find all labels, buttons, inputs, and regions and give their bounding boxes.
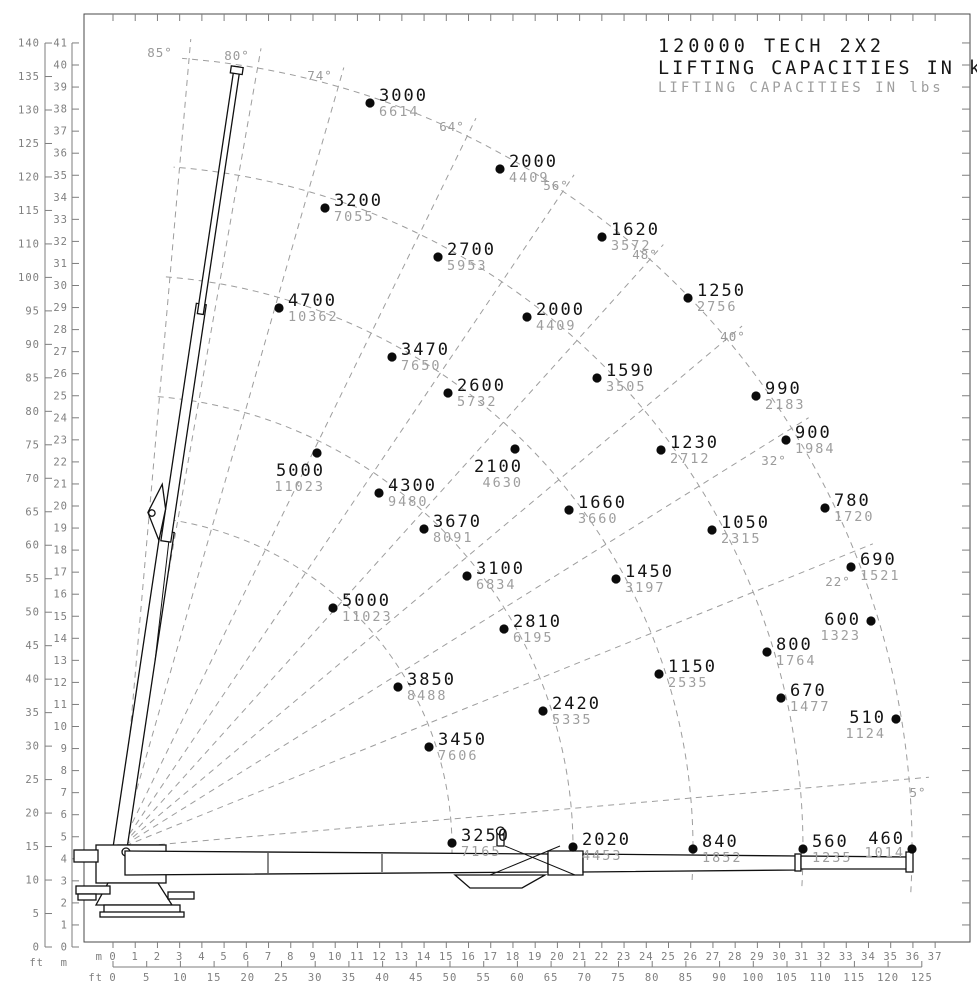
- svg-text:36: 36: [906, 951, 921, 963]
- angle-label: 80°: [224, 48, 250, 63]
- svg-text:1660: 1660: [578, 493, 627, 513]
- svg-text:6: 6: [243, 951, 250, 963]
- svg-text:7055: 7055: [334, 209, 375, 225]
- svg-text:22: 22: [595, 951, 610, 963]
- svg-text:85: 85: [25, 372, 40, 384]
- svg-text:85: 85: [679, 972, 694, 984]
- svg-text:3450: 3450: [438, 730, 487, 750]
- capacity-point: 9902183: [751, 379, 805, 413]
- angle-label: 22°: [825, 574, 851, 589]
- capacity-point: 7801720: [820, 491, 874, 525]
- capacity-point: 31006834: [462, 559, 525, 593]
- svg-text:16: 16: [461, 951, 476, 963]
- svg-text:14: 14: [417, 951, 432, 963]
- svg-text:990: 990: [765, 379, 802, 399]
- svg-text:24: 24: [639, 951, 654, 963]
- svg-text:20: 20: [240, 972, 255, 984]
- svg-text:ft: ft: [88, 972, 103, 984]
- capacity-point: 500011023: [274, 448, 325, 495]
- svg-text:2600: 2600: [457, 376, 506, 396]
- svg-text:16: 16: [53, 589, 68, 601]
- svg-text:130: 130: [18, 105, 40, 117]
- svg-text:1014: 1014: [864, 845, 905, 861]
- svg-text:1250: 1250: [697, 281, 746, 301]
- svg-text:13: 13: [395, 951, 410, 963]
- svg-text:4409: 4409: [509, 170, 550, 186]
- svg-text:17: 17: [483, 951, 498, 963]
- svg-text:1: 1: [61, 919, 68, 931]
- svg-text:0: 0: [109, 972, 116, 984]
- capacity-point: 8001764: [762, 635, 816, 669]
- svg-text:27: 27: [53, 346, 68, 358]
- svg-text:6195: 6195: [513, 630, 554, 646]
- svg-text:33: 33: [53, 214, 68, 226]
- svg-text:12: 12: [53, 677, 68, 689]
- svg-text:7: 7: [61, 787, 68, 799]
- svg-text:15: 15: [207, 972, 222, 984]
- svg-text:15: 15: [439, 951, 454, 963]
- svg-text:37: 37: [928, 951, 943, 963]
- svg-text:5: 5: [220, 951, 227, 963]
- angle-label: 32°: [761, 453, 787, 468]
- svg-text:25: 25: [274, 972, 289, 984]
- svg-text:35: 35: [53, 170, 68, 182]
- svg-text:7606: 7606: [438, 748, 479, 764]
- svg-text:45: 45: [409, 972, 424, 984]
- chart-title-block: 120000 TECH 2X2 LIFTING CAPACITIES IN kg…: [658, 36, 977, 96]
- svg-text:5000: 5000: [276, 461, 325, 481]
- svg-text:m: m: [61, 957, 68, 969]
- svg-text:50: 50: [443, 972, 458, 984]
- svg-text:2712: 2712: [670, 451, 711, 467]
- svg-text:10: 10: [173, 972, 188, 984]
- svg-text:3: 3: [176, 951, 183, 963]
- svg-text:18: 18: [53, 545, 68, 557]
- svg-text:1150: 1150: [668, 657, 717, 677]
- svg-text:2810: 2810: [513, 612, 562, 632]
- svg-text:2756: 2756: [697, 299, 738, 315]
- svg-text:9: 9: [61, 743, 68, 755]
- svg-text:11023: 11023: [342, 609, 393, 625]
- svg-text:4453: 4453: [582, 848, 623, 864]
- svg-text:110: 110: [18, 238, 40, 250]
- svg-text:0: 0: [33, 942, 40, 954]
- svg-text:22: 22: [53, 456, 68, 468]
- svg-text:1235: 1235: [812, 850, 853, 866]
- svg-text:120: 120: [877, 972, 899, 984]
- svg-text:40: 40: [53, 60, 68, 72]
- capacity-point: 28106195: [499, 612, 562, 646]
- svg-text:690: 690: [860, 550, 897, 570]
- svg-text:6834: 6834: [476, 577, 517, 593]
- svg-text:120: 120: [18, 171, 40, 183]
- svg-text:31: 31: [794, 951, 809, 963]
- svg-text:2700: 2700: [447, 240, 496, 260]
- svg-text:40: 40: [375, 972, 390, 984]
- capacity-point: 21004630: [474, 444, 523, 491]
- chart-title: 120000 TECH 2X2: [658, 36, 885, 57]
- svg-text:115: 115: [843, 972, 865, 984]
- svg-text:125: 125: [18, 138, 40, 150]
- crane-load-chart: 0510152025303540455055606570758085909510…: [0, 0, 977, 1000]
- svg-text:95: 95: [25, 305, 40, 317]
- svg-text:3850: 3850: [407, 670, 456, 690]
- capacity-point: 16203572: [597, 220, 660, 254]
- svg-text:8: 8: [61, 765, 68, 777]
- svg-text:60: 60: [25, 540, 40, 552]
- capacity-point: 20004409: [495, 152, 558, 186]
- svg-text:55: 55: [25, 573, 40, 585]
- svg-text:24: 24: [53, 412, 68, 424]
- svg-text:1323: 1323: [820, 628, 861, 644]
- svg-text:29: 29: [750, 951, 765, 963]
- svg-text:7165: 7165: [461, 844, 502, 860]
- svg-text:3660: 3660: [578, 511, 619, 527]
- svg-text:105: 105: [776, 972, 798, 984]
- bottom-axes-m-ft: 0123456789101112131415161718192021222324…: [88, 951, 942, 984]
- capacity-point: 6001323: [820, 610, 875, 644]
- svg-text:34: 34: [861, 951, 876, 963]
- capacity-point: 5101124: [845, 708, 900, 742]
- svg-text:32: 32: [53, 236, 68, 248]
- svg-text:3100: 3100: [476, 559, 525, 579]
- svg-text:5335: 5335: [552, 712, 593, 728]
- svg-text:3: 3: [61, 875, 68, 887]
- svg-text:3470: 3470: [401, 340, 450, 360]
- left-axes-ft-m: 0510152025303540455055606570758085909510…: [18, 37, 79, 969]
- svg-text:900: 900: [795, 423, 832, 443]
- capacity-point: 9001984: [781, 423, 835, 457]
- svg-text:8091: 8091: [433, 530, 474, 546]
- svg-text:100: 100: [18, 272, 40, 284]
- svg-text:20: 20: [25, 808, 40, 820]
- svg-text:3200: 3200: [334, 191, 383, 211]
- svg-text:13: 13: [53, 655, 68, 667]
- svg-text:3572: 3572: [611, 238, 652, 254]
- svg-text:4630: 4630: [482, 475, 523, 491]
- svg-text:40: 40: [25, 674, 40, 686]
- svg-text:5732: 5732: [457, 394, 498, 410]
- capacity-point: 14503197: [611, 562, 674, 596]
- svg-text:780: 780: [834, 491, 871, 511]
- capacity-point: 27005953: [433, 240, 496, 274]
- svg-text:25: 25: [661, 951, 676, 963]
- svg-text:100: 100: [742, 972, 764, 984]
- svg-text:3000: 3000: [379, 86, 428, 106]
- capacity-point: 6701477: [776, 681, 830, 715]
- svg-text:15: 15: [53, 611, 68, 623]
- svg-text:3505: 3505: [606, 379, 647, 395]
- svg-text:70: 70: [577, 972, 592, 984]
- svg-text:32: 32: [817, 951, 832, 963]
- svg-text:90: 90: [712, 972, 727, 984]
- chart-subtitle-kg: LIFTING CAPACITIES IN kg: [658, 58, 977, 79]
- svg-text:27: 27: [706, 951, 721, 963]
- svg-text:20: 20: [53, 501, 68, 513]
- svg-text:11: 11: [350, 951, 365, 963]
- capacity-point: 34707650: [387, 340, 450, 374]
- svg-text:1590: 1590: [606, 361, 655, 381]
- load-chart-svg: 0510152025303540455055606570758085909510…: [0, 0, 977, 1000]
- svg-text:1050: 1050: [721, 513, 770, 533]
- svg-text:9480: 9480: [388, 494, 429, 510]
- svg-text:20: 20: [550, 951, 565, 963]
- svg-text:2315: 2315: [721, 531, 762, 547]
- svg-text:90: 90: [25, 339, 40, 351]
- svg-text:50: 50: [25, 607, 40, 619]
- svg-text:7650: 7650: [401, 358, 442, 374]
- svg-text:4: 4: [61, 853, 68, 865]
- svg-text:30: 30: [53, 280, 68, 292]
- svg-text:35: 35: [883, 951, 898, 963]
- svg-text:65: 65: [25, 506, 40, 518]
- svg-text:6614: 6614: [379, 104, 420, 120]
- svg-text:25: 25: [25, 774, 40, 786]
- svg-text:1984: 1984: [795, 441, 836, 457]
- svg-text:10362: 10362: [288, 309, 339, 325]
- svg-text:18: 18: [506, 951, 521, 963]
- svg-text:2420: 2420: [552, 694, 601, 714]
- capacity-point: 30006614: [365, 86, 428, 120]
- svg-text:2020: 2020: [582, 830, 631, 850]
- svg-text:34: 34: [53, 192, 68, 204]
- angle-label: 40°: [720, 329, 746, 344]
- svg-text:60: 60: [510, 972, 525, 984]
- capacity-point: 15903505: [592, 361, 655, 395]
- svg-text:1: 1: [132, 951, 139, 963]
- svg-text:0: 0: [61, 942, 68, 954]
- svg-text:11023: 11023: [274, 479, 325, 495]
- svg-text:28: 28: [728, 951, 743, 963]
- svg-text:29: 29: [53, 302, 68, 314]
- svg-text:3197: 3197: [625, 580, 666, 596]
- svg-text:30: 30: [772, 951, 787, 963]
- svg-text:4300: 4300: [388, 476, 437, 496]
- svg-text:5000: 5000: [342, 591, 391, 611]
- svg-text:41: 41: [53, 37, 68, 49]
- svg-text:2: 2: [61, 897, 68, 909]
- svg-text:31: 31: [53, 258, 68, 270]
- svg-text:8: 8: [287, 951, 294, 963]
- svg-text:10: 10: [53, 721, 68, 733]
- svg-text:840: 840: [702, 832, 739, 852]
- svg-text:35: 35: [342, 972, 357, 984]
- svg-text:3670: 3670: [433, 512, 482, 532]
- angle-label: 85°: [147, 45, 173, 60]
- svg-text:800: 800: [776, 635, 813, 655]
- svg-text:125: 125: [911, 972, 933, 984]
- svg-text:1521: 1521: [860, 568, 901, 584]
- capacity-point: 11502535: [654, 657, 717, 691]
- svg-text:28: 28: [53, 324, 68, 336]
- svg-text:21: 21: [53, 478, 68, 490]
- svg-text:7: 7: [265, 951, 272, 963]
- svg-text:560: 560: [812, 832, 849, 852]
- svg-text:1477: 1477: [790, 699, 831, 715]
- svg-text:5: 5: [143, 972, 150, 984]
- svg-text:12: 12: [372, 951, 387, 963]
- svg-text:110: 110: [810, 972, 832, 984]
- svg-text:2: 2: [154, 951, 161, 963]
- svg-text:140: 140: [18, 38, 40, 50]
- svg-text:65: 65: [544, 972, 559, 984]
- svg-text:23: 23: [53, 434, 68, 446]
- svg-text:5953: 5953: [447, 258, 488, 274]
- capacity-point: 10502315: [707, 513, 770, 547]
- svg-text:1450: 1450: [625, 562, 674, 582]
- svg-text:30: 30: [25, 741, 40, 753]
- svg-text:510: 510: [849, 708, 886, 728]
- svg-text:14: 14: [53, 633, 68, 645]
- raised-boom: [98, 63, 243, 849]
- svg-text:2183: 2183: [765, 397, 806, 413]
- svg-text:1764: 1764: [776, 653, 817, 669]
- svg-text:70: 70: [25, 473, 40, 485]
- svg-text:15: 15: [25, 841, 40, 853]
- svg-text:75: 75: [25, 439, 40, 451]
- chart-subtitle-lbs: LIFTING CAPACITIES IN lbs: [658, 80, 944, 96]
- svg-text:1620: 1620: [611, 220, 660, 240]
- capacity-point: 470010362: [274, 291, 338, 325]
- svg-text:36: 36: [53, 148, 68, 160]
- angle-label: 74°: [307, 68, 333, 83]
- svg-text:600: 600: [824, 610, 861, 630]
- svg-text:10: 10: [328, 951, 343, 963]
- capacity-point: 500011023: [328, 591, 392, 625]
- svg-text:2100: 2100: [474, 457, 523, 477]
- svg-text:55: 55: [476, 972, 491, 984]
- svg-text:1124: 1124: [845, 726, 886, 742]
- svg-text:11: 11: [53, 699, 68, 711]
- angle-label: 64°: [439, 119, 465, 134]
- svg-text:2000: 2000: [536, 300, 585, 320]
- svg-text:1852: 1852: [702, 850, 743, 866]
- svg-text:33: 33: [839, 951, 854, 963]
- svg-text:8488: 8488: [407, 688, 448, 704]
- svg-text:19: 19: [528, 951, 543, 963]
- svg-text:2000: 2000: [509, 152, 558, 172]
- svg-text:19: 19: [53, 523, 68, 535]
- svg-text:38: 38: [53, 104, 68, 116]
- capacity-point: 6901521: [846, 550, 900, 584]
- svg-text:1230: 1230: [670, 433, 719, 453]
- capacity-point: 34507606: [424, 730, 487, 764]
- svg-text:25: 25: [53, 390, 68, 402]
- svg-text:80: 80: [645, 972, 660, 984]
- svg-text:670: 670: [790, 681, 827, 701]
- svg-text:2535: 2535: [668, 675, 709, 691]
- svg-text:37: 37: [53, 126, 68, 138]
- svg-text:30: 30: [308, 972, 323, 984]
- svg-text:115: 115: [18, 205, 40, 217]
- svg-text:26: 26: [53, 368, 68, 380]
- capacity-point: 38508488: [393, 670, 456, 704]
- svg-text:39: 39: [53, 82, 68, 94]
- svg-text:45: 45: [25, 640, 40, 652]
- svg-text:135: 135: [18, 71, 40, 83]
- capacity-point: 32007055: [320, 191, 383, 225]
- capacity-point: 12502756: [683, 281, 746, 315]
- svg-text:ft: ft: [29, 957, 44, 969]
- svg-text:1720: 1720: [834, 509, 875, 525]
- svg-text:m: m: [96, 951, 103, 963]
- angle-label: 5°: [909, 785, 926, 800]
- svg-text:4: 4: [198, 951, 205, 963]
- svg-text:10: 10: [25, 875, 40, 887]
- svg-text:3250: 3250: [461, 826, 510, 846]
- svg-text:4700: 4700: [288, 291, 337, 311]
- svg-text:5: 5: [61, 831, 68, 843]
- svg-text:6: 6: [61, 809, 68, 821]
- svg-text:80: 80: [25, 406, 40, 418]
- svg-text:4409: 4409: [536, 318, 577, 334]
- svg-text:35: 35: [25, 707, 40, 719]
- capacity-point: 20004409: [522, 300, 585, 334]
- svg-text:17: 17: [53, 567, 68, 579]
- capacity-point: 43009480: [374, 476, 437, 510]
- svg-text:75: 75: [611, 972, 626, 984]
- svg-text:5: 5: [33, 908, 40, 920]
